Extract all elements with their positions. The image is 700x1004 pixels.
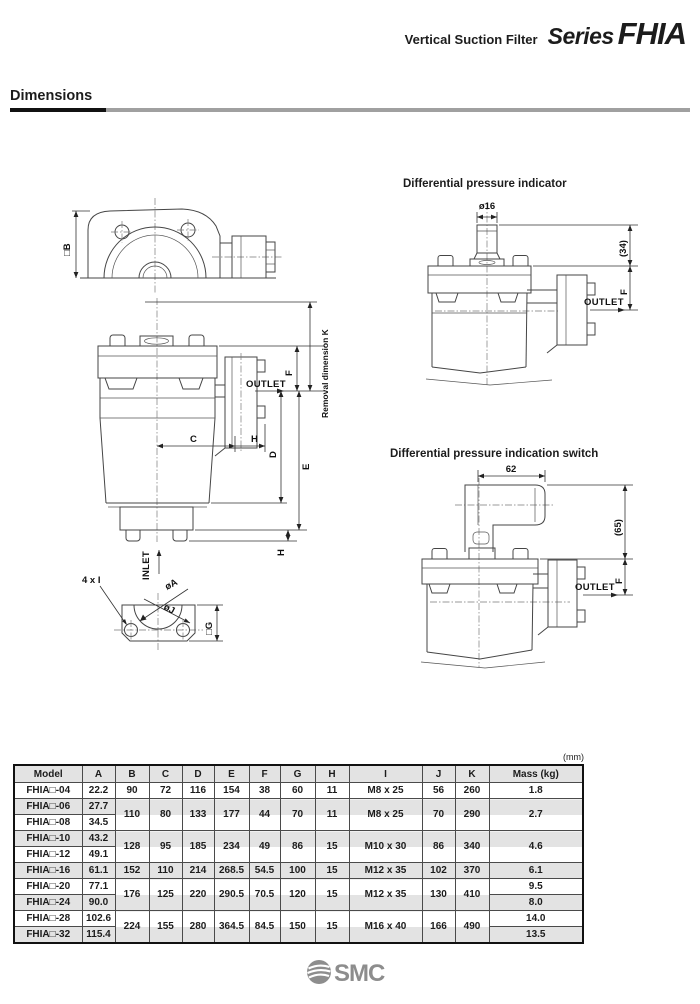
product-name: Vertical Suction Filter bbox=[405, 32, 538, 47]
col-g: G bbox=[280, 765, 315, 783]
indicator-diagram: ø16 OUTLET (34) F bbox=[400, 195, 690, 390]
dia-a-label: øA bbox=[163, 577, 179, 593]
table-row: FHIA□-20 77.1 176 125 220 290.5 70.5 120… bbox=[14, 879, 583, 895]
switch-diagram: 62 OUTLET (65) F bbox=[385, 462, 685, 672]
page-header: Vertical Suction Filter SeriesFHIA bbox=[405, 16, 686, 52]
model-cell: FHIA□-20 bbox=[14, 879, 82, 895]
model-cell: FHIA□-06 bbox=[14, 799, 82, 815]
dimensions-table: Model A B C D E F G H I J K Mass (kg) FH… bbox=[13, 764, 584, 944]
model-cell: FHIA□-04 bbox=[14, 783, 82, 799]
model-cell: FHIA□-08 bbox=[14, 815, 82, 831]
smc-logo-icon bbox=[307, 960, 331, 984]
switch-title: Differential pressure indication switch bbox=[390, 448, 598, 460]
col-h: H bbox=[315, 765, 349, 783]
front-outlet-label: OUTLET bbox=[246, 379, 286, 390]
dim-d-label: D bbox=[268, 451, 279, 458]
table-row: FHIA□-16 61.1 152 110 214 268.5 54.5 100… bbox=[14, 863, 583, 879]
col-i: I bbox=[349, 765, 422, 783]
model-cell: FHIA□-24 bbox=[14, 895, 82, 911]
model-cell: FHIA□-28 bbox=[14, 911, 82, 927]
dim-h-bottom-label: H bbox=[276, 549, 287, 556]
dim-e-label: E bbox=[301, 464, 312, 470]
col-d: D bbox=[182, 765, 214, 783]
dim62-label: 62 bbox=[506, 464, 517, 475]
table-row: FHIA□-28 102.6 224 155 280 364.5 84.5 15… bbox=[14, 911, 583, 927]
top-view-diagram: □B bbox=[60, 188, 285, 298]
dim-g-label: □G bbox=[204, 622, 215, 635]
section-rule-accent bbox=[10, 108, 106, 112]
dim-c-label: C bbox=[190, 434, 197, 445]
indicator-dim-f-label: F bbox=[619, 289, 630, 295]
model-cell: FHIA□-32 bbox=[14, 927, 82, 944]
model-cell: FHIA□-16 bbox=[14, 863, 82, 879]
col-f: F bbox=[249, 765, 280, 783]
unit-label: (mm) bbox=[13, 752, 584, 762]
dia16-label: ø16 bbox=[479, 201, 495, 212]
removal-dim-label: Removal dimension K bbox=[320, 328, 330, 418]
dim-h-side-label: H bbox=[251, 434, 258, 445]
series-title: SeriesFHIA bbox=[548, 16, 686, 52]
indicator-title: Differential pressure indicator bbox=[403, 178, 567, 190]
bottom-view-diagram: 4 x I øA øJ □G bbox=[70, 565, 265, 685]
footer: SMC bbox=[0, 956, 700, 988]
col-c: C bbox=[149, 765, 182, 783]
model-cell: FHIA□-10 bbox=[14, 831, 82, 847]
front-view-diagram: OUTLET F D E Removal dimension K C bbox=[85, 298, 355, 588]
table-row: FHIA□-06 27.7 110 80 133 177 44 70 11 M8… bbox=[14, 799, 583, 815]
smc-logo: SMC bbox=[305, 956, 395, 988]
table-row: FHIA□-04 22.2 90 72 116 154 38 60 11 M8 … bbox=[14, 783, 583, 799]
col-e: E bbox=[214, 765, 249, 783]
dim65-label: (65) bbox=[613, 519, 624, 536]
switch-outlet-label: OUTLET bbox=[575, 582, 615, 593]
col-j: J bbox=[422, 765, 455, 783]
indicator-outlet-label: OUTLET bbox=[584, 297, 624, 308]
col-b: B bbox=[115, 765, 149, 783]
table-row: FHIA□-10 43.2 128 95 185 234 49 86 15 M1… bbox=[14, 831, 583, 847]
dim34-label: (34) bbox=[618, 240, 629, 257]
datasheet-page: Vertical Suction Filter SeriesFHIA Dimen… bbox=[0, 0, 700, 1004]
dim-b-label: □B bbox=[62, 243, 73, 256]
col-mass: Mass (kg) bbox=[489, 765, 583, 783]
section-rule bbox=[10, 108, 690, 112]
bolt-count-label: 4 x I bbox=[82, 575, 101, 586]
smc-logo-text: SMC bbox=[334, 960, 385, 987]
section-title: Dimensions bbox=[10, 88, 92, 104]
model-cell: FHIA□-12 bbox=[14, 847, 82, 863]
col-a: A bbox=[82, 765, 115, 783]
col-model: Model bbox=[14, 765, 82, 783]
table-header-row: Model A B C D E F G H I J K Mass (kg) bbox=[14, 765, 583, 783]
dim-f-label: F bbox=[284, 370, 295, 376]
col-k: K bbox=[455, 765, 489, 783]
switch-dim-f-label: F bbox=[614, 578, 625, 584]
